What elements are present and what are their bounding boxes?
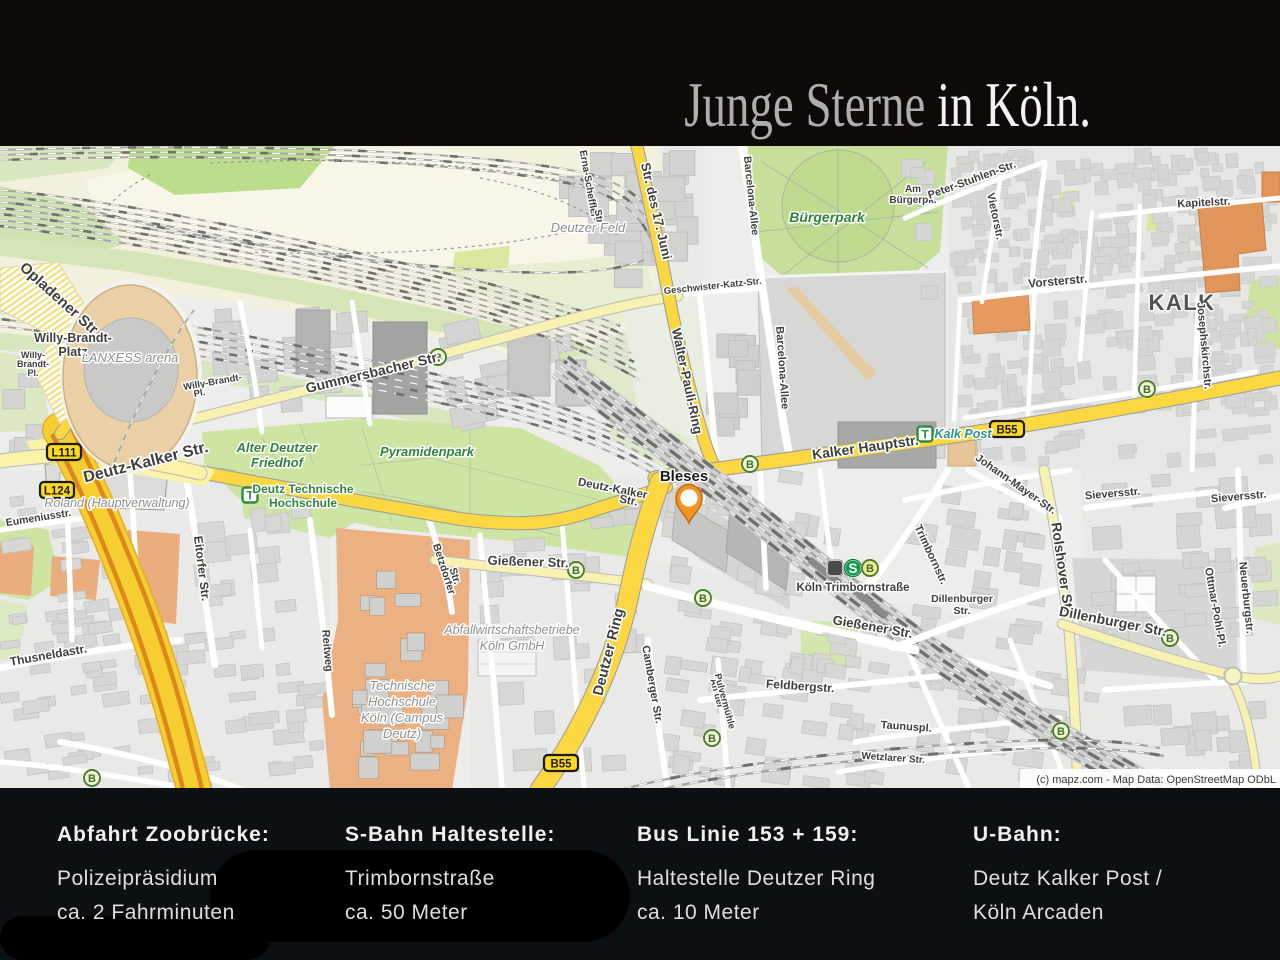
svg-text:B: B [866,563,874,575]
svg-text:Alter Deutzer: Alter Deutzer [236,440,319,455]
svg-text:B: B [746,459,754,471]
svg-text:LANXESS arena: LANXESS arena [82,350,179,365]
svg-text:Hochschule: Hochschule [269,496,337,510]
svg-text:Gießener Str.: Gießener Str. [487,553,568,571]
svg-text:L111: L111 [52,448,78,460]
svg-text:Str.: Str. [954,605,971,617]
svg-text:Pyramidenpark: Pyramidenpark [380,444,475,459]
svg-text:Technische: Technische [369,678,434,693]
svg-text:B: B [572,565,580,577]
svg-text:B: B [708,733,716,745]
svg-text:B: B [1166,633,1174,645]
svg-text:B55: B55 [996,425,1018,437]
svg-text:Am: Am [905,184,921,195]
svg-text:B: B [1143,384,1151,396]
svg-text:Willy-Brandt-: Willy-Brandt- [34,331,112,345]
svg-text:Deutzer Feld: Deutzer Feld [551,220,626,235]
svg-text:Köln Trimbornstraße: Köln Trimbornstraße [796,582,909,594]
svg-text:Deutz Technische: Deutz Technische [252,482,353,496]
svg-text:Bürgerpark: Bürgerpark [789,209,866,225]
svg-text:Köln (Campus: Köln (Campus [361,710,444,725]
svg-text:Köln GmbH: Köln GmbH [480,639,546,653]
svg-text:Pl.: Pl. [193,387,206,400]
svg-text:B55: B55 [550,759,572,771]
svg-text:Dillenburger: Dillenburger [931,593,993,605]
svg-text:T: T [921,428,929,442]
svg-text:Bleses: Bleses [660,468,708,485]
svg-text:S: S [848,561,857,576]
svg-text:Abfallwirtschaftsbetriebe: Abfallwirtschaftsbetriebe [443,623,580,637]
svg-text:B: B [1057,726,1065,738]
svg-text:Deutz): Deutz) [383,726,421,741]
svg-text:Kalk Post: Kalk Post [935,427,993,441]
svg-text:(c) mapz.com - Map Data: OpenS: (c) mapz.com - Map Data: OpenStreetMap O… [1036,774,1276,786]
svg-text:Roland (Hauptverwaltung): Roland (Hauptverwaltung) [44,496,189,510]
svg-text:B: B [88,773,96,785]
svg-text:Pl.: Pl. [27,368,38,378]
svg-text:Friedhof: Friedhof [251,455,305,470]
svg-text:B: B [699,593,707,605]
svg-text:Hochschule: Hochschule [368,694,436,709]
